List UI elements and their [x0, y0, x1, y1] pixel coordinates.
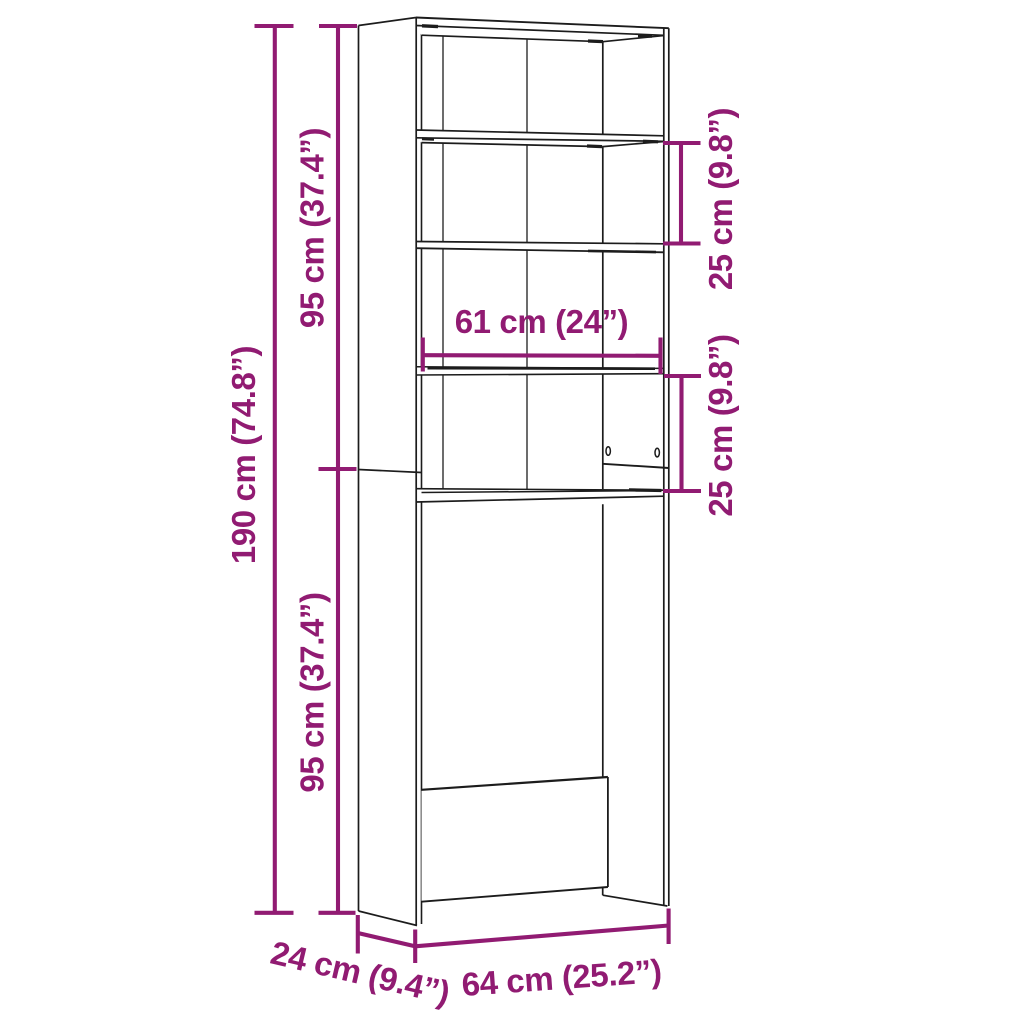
svg-text:190 cm (74.8”): 190 cm (74.8”) — [225, 346, 262, 564]
svg-text:25 cm (9.8”): 25 cm (9.8”) — [702, 334, 739, 516]
svg-text:95 cm (37.4”): 95 cm (37.4”) — [294, 592, 331, 792]
svg-text:61 cm (24”): 61 cm (24”) — [455, 303, 629, 340]
svg-text:25 cm (9.8”): 25 cm (9.8”) — [702, 108, 739, 290]
svg-text:95 cm (37.4”): 95 cm (37.4”) — [294, 128, 331, 328]
